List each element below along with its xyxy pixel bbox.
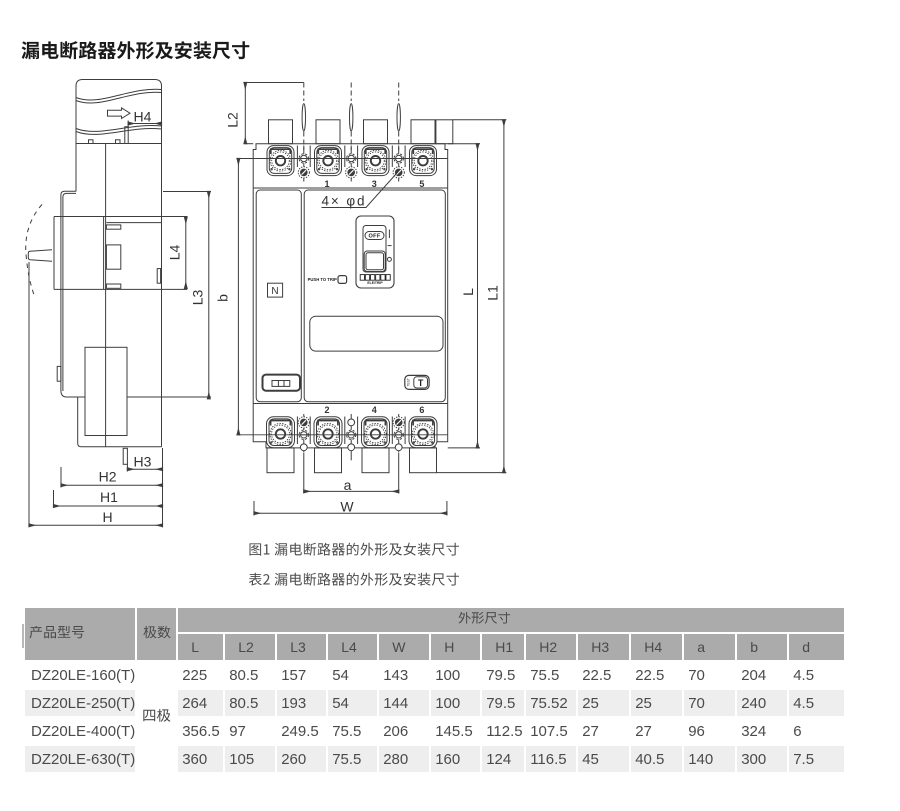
svg-text:ELE/TRIP: ELE/TRIP bbox=[367, 281, 383, 285]
svg-text:W: W bbox=[340, 499, 354, 515]
svg-text:H: H bbox=[103, 509, 113, 525]
svg-text:L2: L2 bbox=[224, 112, 240, 128]
svg-text:6: 6 bbox=[419, 405, 424, 415]
svg-text:TEST: TEST bbox=[407, 378, 411, 386]
svg-text:4× φd: 4× φd bbox=[322, 194, 367, 209]
svg-text:b: b bbox=[215, 294, 231, 302]
svg-text:2: 2 bbox=[324, 405, 329, 415]
svg-text:N: N bbox=[271, 286, 278, 297]
svg-text:4: 4 bbox=[372, 405, 377, 415]
svg-text:L: L bbox=[460, 288, 476, 296]
svg-text:L1: L1 bbox=[485, 285, 501, 301]
svg-text:3: 3 bbox=[372, 179, 377, 189]
svg-text:a: a bbox=[344, 477, 352, 493]
svg-text:L4: L4 bbox=[167, 245, 183, 261]
svg-text:H2: H2 bbox=[99, 469, 117, 485]
svg-text:PUSH TO TRIP: PUSH TO TRIP bbox=[308, 277, 337, 282]
svg-text:OFF: OFF bbox=[368, 234, 380, 240]
svg-text:H3: H3 bbox=[134, 454, 152, 470]
svg-text:L3: L3 bbox=[190, 290, 206, 306]
svg-text:1: 1 bbox=[324, 179, 329, 189]
svg-text:H4: H4 bbox=[134, 109, 152, 125]
svg-text:T: T bbox=[418, 378, 424, 388]
svg-text:H1: H1 bbox=[100, 489, 118, 505]
svg-text:5: 5 bbox=[419, 179, 424, 189]
